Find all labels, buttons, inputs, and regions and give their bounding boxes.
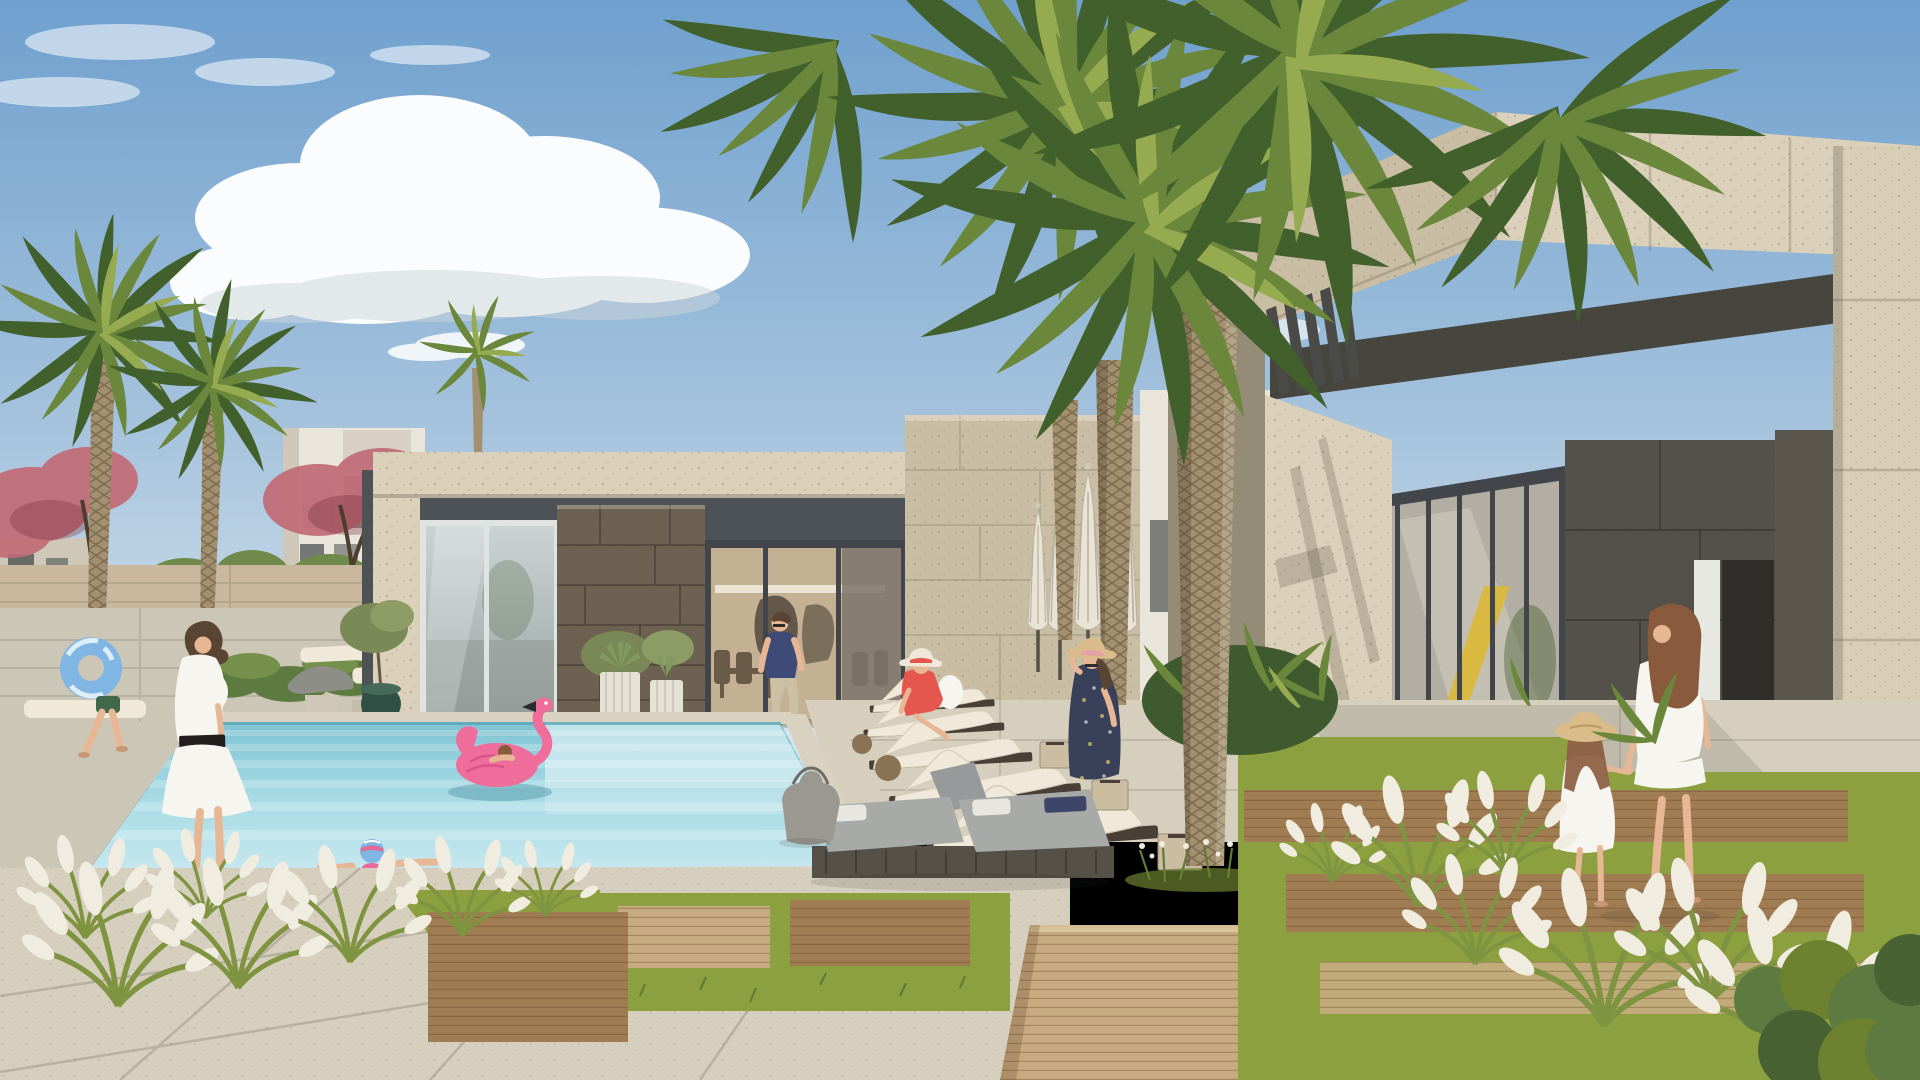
scene-canvas xyxy=(0,0,1920,1080)
rendered-scene: Photorealistic render of a luxury villa … xyxy=(0,0,1920,1080)
wicker-stool xyxy=(875,755,901,781)
auburn-hair xyxy=(1648,604,1702,709)
tropical-bed xyxy=(1142,645,1338,755)
held-hands xyxy=(1623,765,1633,775)
interior-plant-reflection xyxy=(1504,605,1556,715)
center-lawn xyxy=(598,893,1010,1011)
pavilion-glass-right xyxy=(705,540,907,723)
folded-towel xyxy=(1044,796,1087,813)
pavilion-glass-left xyxy=(420,520,560,723)
pillow xyxy=(972,798,1011,816)
